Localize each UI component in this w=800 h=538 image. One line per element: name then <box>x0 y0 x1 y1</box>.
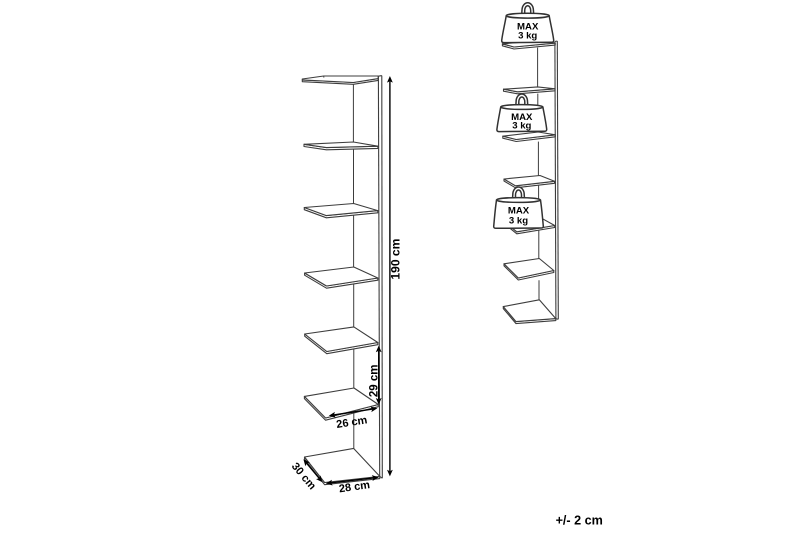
svg-text:3 kg: 3 kg <box>518 30 537 41</box>
svg-text:190 cm: 190 cm <box>389 239 403 280</box>
svg-text:3 kg: 3 kg <box>512 120 531 131</box>
svg-text:+/- 2 cm: +/- 2 cm <box>556 513 603 527</box>
svg-text:29 cm: 29 cm <box>368 364 380 397</box>
svg-text:3 kg: 3 kg <box>509 216 528 227</box>
